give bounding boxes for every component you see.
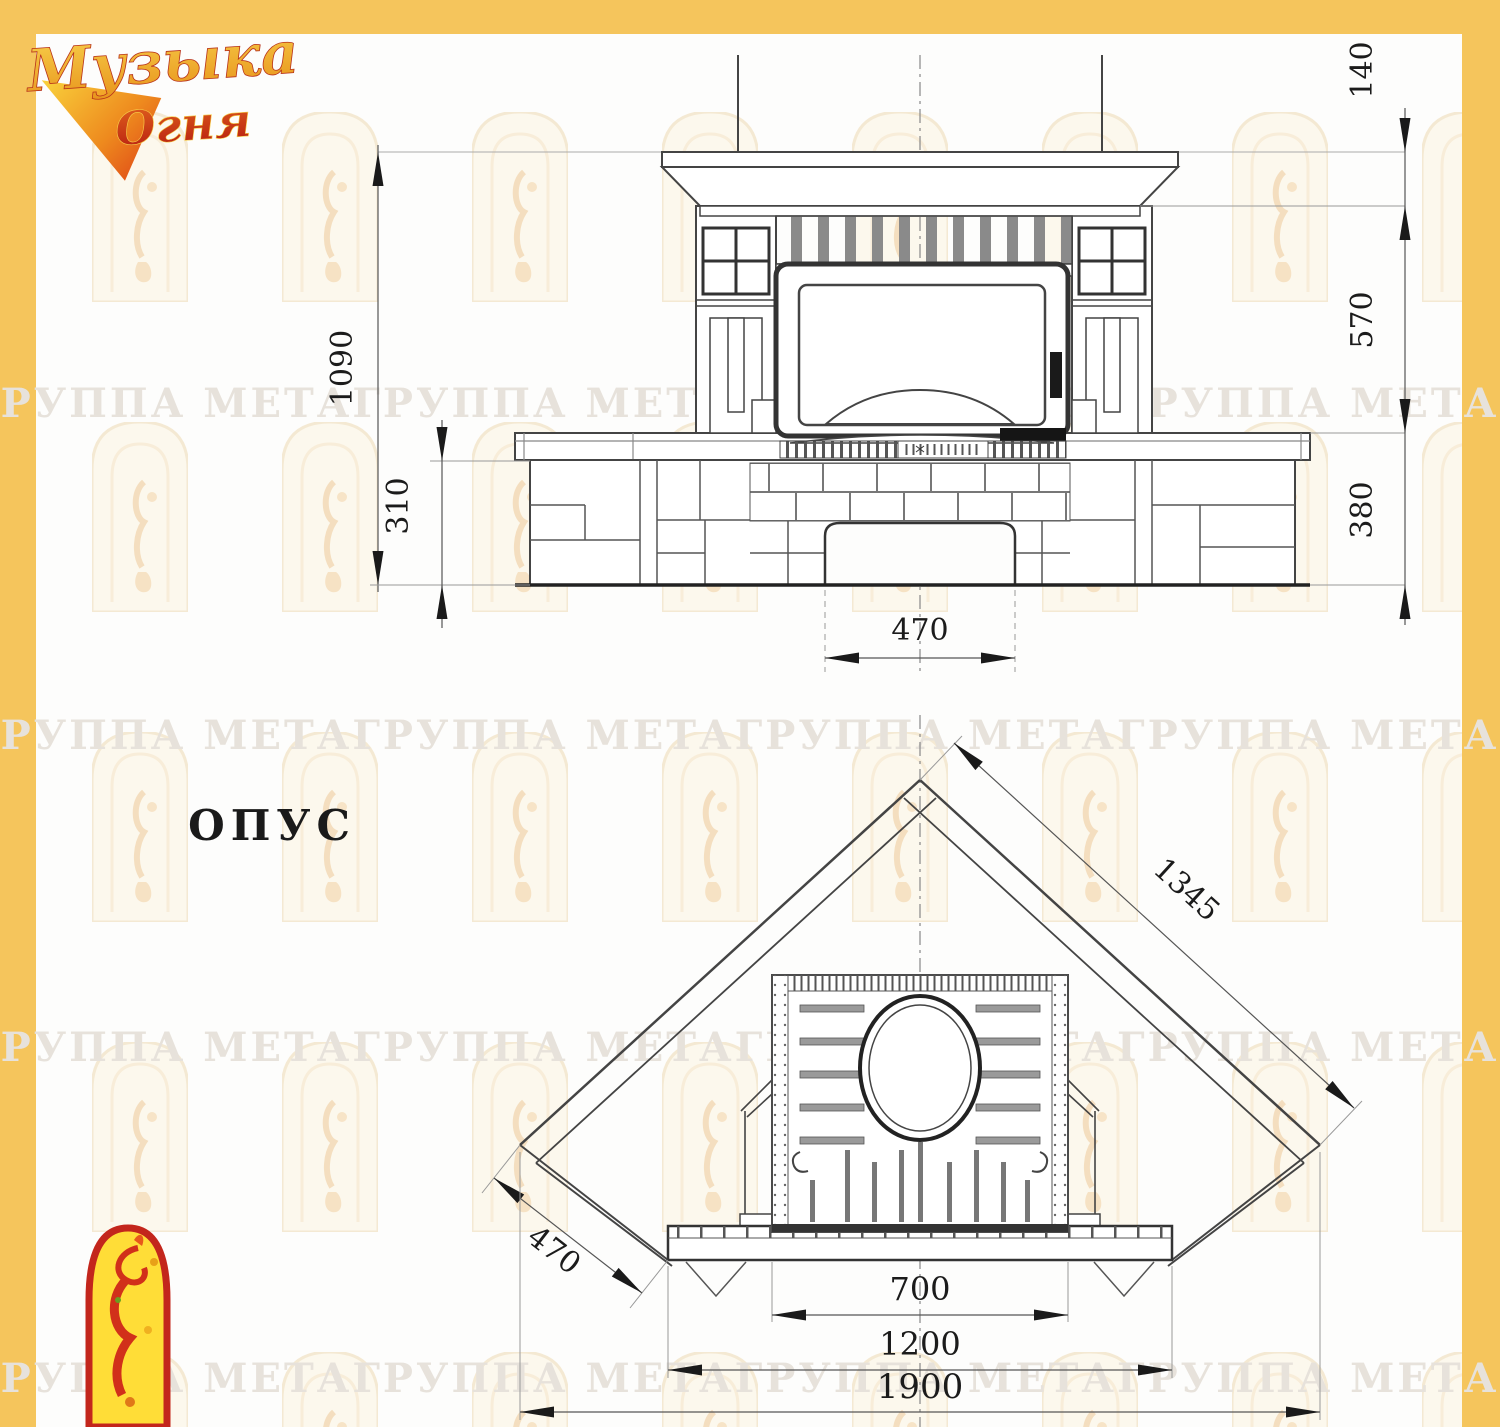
- dim-label-380: 380: [1345, 481, 1380, 538]
- watermark-row: ГРУППА МЕТАГРУППА МЕТАГРУППА МЕТАГРУППА …: [0, 712, 1500, 759]
- dim-label-1900: 1900: [877, 1367, 964, 1407]
- brand-word-2: Огня: [113, 93, 253, 156]
- scanned-drawing-page: ГРУППА МЕТАГРУППА МЕТАГРУППА МЕТАГРУППА …: [0, 0, 1500, 1427]
- firebox-door: [776, 264, 1068, 443]
- vent-bar: [1000, 428, 1066, 441]
- door-handle: [1050, 352, 1062, 398]
- flue-circle: [860, 996, 980, 1140]
- firebox-plan: [772, 975, 1068, 1232]
- dim-label-1090: 1090: [325, 330, 360, 406]
- dim-label-1200: 1200: [879, 1325, 960, 1363]
- page-title: ОПУС: [188, 801, 356, 850]
- corner-arch-logo: [89, 1228, 167, 1427]
- dentil-band: [776, 216, 1072, 264]
- watermark-row: ГРУППА МЕТАГРУППА МЕТАГРУППА МЕТАГРУППА …: [0, 1355, 1500, 1402]
- dim-label-570: 570: [1345, 291, 1380, 348]
- dim-label-310: 310: [381, 477, 416, 534]
- watermark-row: ГРУППА МЕТАГРУППА МЕТАГРУППА МЕТАГРУППА …: [0, 1024, 1500, 1071]
- base-arch-opening: [825, 523, 1015, 585]
- cornice: [662, 152, 1178, 206]
- arch-frame-icon: [89, 1228, 167, 1427]
- firebox-front-edge: [772, 1224, 1068, 1232]
- drawing-canvas: ГРУППА МЕТАГРУППА МЕТАГРУППА МЕТАГРУППА …: [0, 0, 1500, 1427]
- cornice-rail: [700, 206, 1140, 216]
- dim-label-470-elevation: 470: [891, 613, 948, 648]
- right-column: [1072, 206, 1152, 433]
- vent-grilles: [780, 441, 1066, 458]
- left-column: [696, 206, 776, 433]
- dim-label-700: 700: [889, 1270, 950, 1308]
- dim-label-140: 140: [1345, 41, 1380, 98]
